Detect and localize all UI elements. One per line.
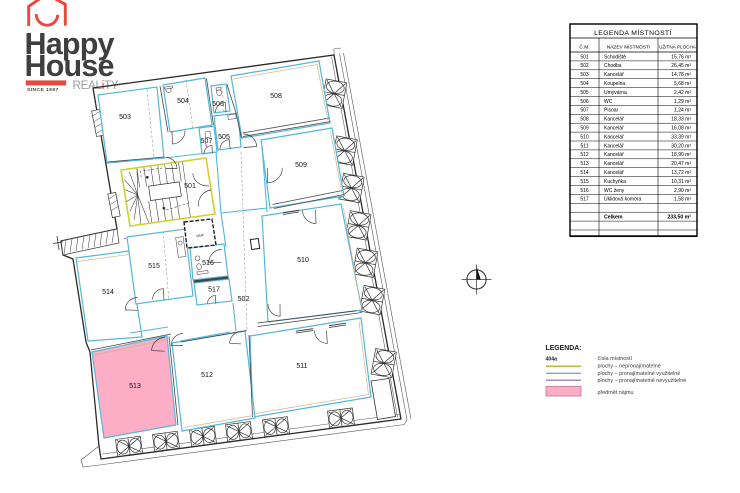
svg-text:506: 506	[580, 99, 589, 105]
svg-text:514: 514	[580, 170, 589, 176]
svg-text:516: 516	[202, 260, 214, 267]
svg-text:517: 517	[208, 287, 220, 294]
svg-text:501: 501	[580, 54, 589, 60]
svg-text:Chodba: Chodba	[604, 63, 622, 69]
svg-text:1,58 m²: 1,58 m²	[674, 197, 691, 203]
svg-text:512: 512	[201, 372, 213, 379]
svg-text:507: 507	[201, 138, 213, 145]
svg-text:Kancelář: Kancelář	[604, 134, 624, 140]
svg-text:233,50 m²: 233,50 m²	[667, 215, 691, 221]
svg-text:2,90 m²: 2,90 m²	[674, 188, 691, 194]
svg-text:20,47 m²: 20,47 m²	[671, 161, 691, 167]
svg-text:10,31 m²: 10,31 m²	[671, 179, 691, 185]
svg-text:Kancelář: Kancelář	[604, 143, 624, 149]
svg-text:508: 508	[270, 93, 282, 100]
svg-text:511: 511	[296, 363, 307, 370]
svg-text:5,68 m²: 5,68 m²	[674, 81, 691, 87]
svg-text:1,29 m²: 1,29 m²	[674, 99, 691, 105]
svg-text:Umývárna: Umývárna	[604, 90, 627, 96]
svg-text:předmět nájmu: předmět nájmu	[598, 390, 634, 396]
svg-text:516: 516	[580, 188, 589, 194]
svg-text:Kancelář: Kancelář	[604, 117, 624, 123]
svg-text:House: House	[25, 49, 114, 83]
svg-text:513: 513	[129, 383, 141, 390]
svg-text:507: 507	[580, 108, 589, 114]
svg-text:Koupelna: Koupelna	[604, 81, 625, 87]
svg-text:515: 515	[580, 179, 589, 185]
svg-text:Kancelář: Kancelář	[604, 126, 624, 132]
svg-text:510: 510	[297, 257, 309, 264]
svg-text:18,90 m²: 18,90 m²	[671, 152, 691, 158]
svg-text:UŽITNÁ PLOCHA: UŽITNÁ PLOCHA	[659, 43, 697, 50]
svg-text:Úklidová komora: Úklidová komora	[604, 196, 641, 203]
svg-text:506: 506	[212, 101, 224, 108]
svg-text:Pisoar: Pisoar	[604, 108, 619, 114]
svg-text:LEGENDA:: LEGENDA:	[546, 345, 582, 352]
svg-text:514: 514	[102, 289, 114, 296]
svg-text:WC: WC	[604, 99, 613, 105]
svg-text:Kancelář: Kancelář	[604, 161, 624, 167]
svg-text:WC ženy: WC ženy	[604, 188, 625, 194]
svg-text:33,39 m²: 33,39 m²	[671, 134, 691, 140]
svg-text:517: 517	[580, 197, 589, 203]
svg-text:Schodiště: Schodiště	[604, 54, 626, 60]
svg-text:509: 509	[580, 126, 589, 132]
svg-text:26,45 m²: 26,45 m²	[671, 63, 691, 69]
svg-text:1,24 m²: 1,24 m²	[674, 108, 691, 114]
svg-text:18,33 m²: 18,33 m²	[671, 117, 691, 123]
svg-text:plochy – pronajímatelné vyu: plochy – pronajímatelné využitelné	[598, 371, 681, 377]
svg-text:plochy – nepronajímatelné: plochy – nepronajímatelné	[598, 364, 661, 370]
svg-text:508: 508	[580, 117, 589, 123]
svg-text:503: 503	[580, 72, 589, 78]
svg-text:Celkem: Celkem	[604, 215, 623, 221]
svg-text:Kancelář: Kancelář	[604, 72, 624, 78]
svg-text:SINCE 1997: SINCE 1997	[27, 87, 59, 93]
svg-text:501: 501	[184, 183, 196, 190]
svg-text:NÁZEV MÍSTNOSTI: NÁZEV MÍSTNOSTI	[607, 44, 650, 51]
svg-text:2,42 m²: 2,42 m²	[674, 90, 691, 96]
svg-text:510: 510	[580, 134, 589, 140]
svg-text:512: 512	[580, 152, 589, 158]
svg-text:13,72 m²: 13,72 m²	[671, 170, 691, 176]
svg-text:14,78 m²: 14,78 m²	[671, 72, 691, 78]
svg-text:505: 505	[580, 90, 589, 96]
svg-text:Č.M.: Č.M.	[579, 44, 589, 51]
svg-text:502: 502	[580, 63, 589, 69]
svg-text:502: 502	[238, 296, 250, 303]
svg-text:plochy – pronajímatelné nev: plochy – pronajímatelné nevyužitelné	[598, 378, 687, 384]
svg-text:LEGENDA MÍSTNOSTÍ: LEGENDA MÍSTNOSTÍ	[594, 28, 672, 37]
svg-text:504: 504	[580, 81, 589, 87]
svg-text:513: 513	[580, 161, 589, 167]
svg-text:503: 503	[119, 114, 131, 121]
svg-text:511: 511	[581, 143, 589, 149]
svg-text:509: 509	[295, 162, 307, 169]
svg-text:15,76 m²: 15,76 m²	[671, 54, 691, 60]
svg-text:30,20 m²: 30,20 m²	[671, 143, 691, 149]
svg-text:505: 505	[218, 134, 230, 141]
svg-text:404a: 404a	[546, 357, 558, 363]
svg-text:Kancelář: Kancelář	[604, 152, 624, 158]
svg-text:Kuchyňka: Kuchyňka	[604, 179, 626, 185]
svg-text:515: 515	[148, 263, 160, 270]
svg-text:Kancelář: Kancelář	[604, 170, 624, 176]
svg-text:16,08 m²: 16,08 m²	[671, 126, 691, 132]
svg-text:čísla místností: čísla místností	[598, 356, 633, 362]
svg-text:504: 504	[177, 98, 189, 105]
